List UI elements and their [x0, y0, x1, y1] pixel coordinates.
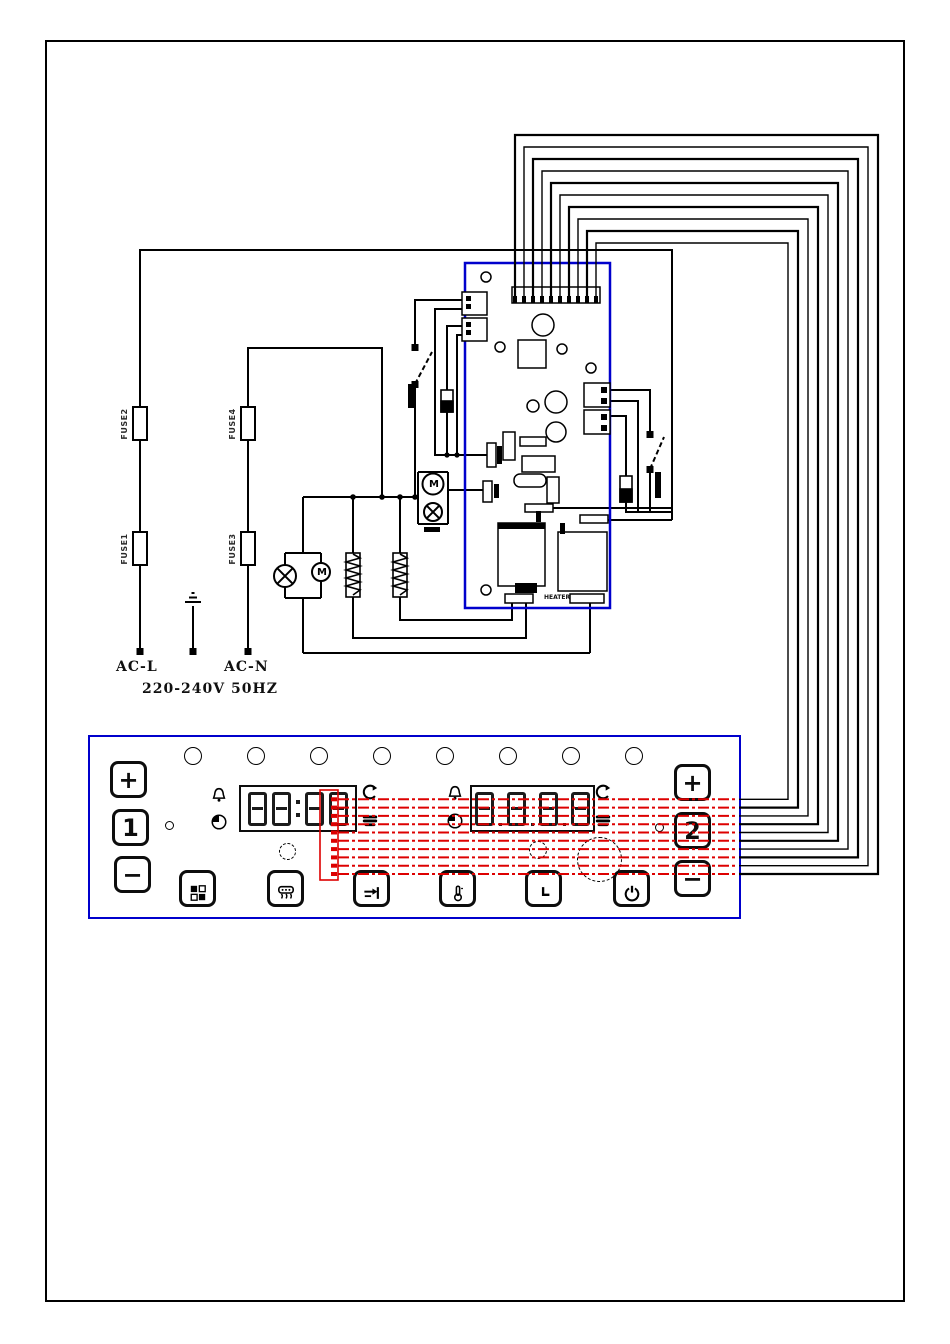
defrost-button[interactable]: [353, 870, 390, 907]
control-panel: + 1 −: [88, 735, 741, 919]
minus-button-right[interactable]: −: [674, 860, 711, 897]
buzzer-hole: [529, 841, 547, 859]
fuse4-label: FUSE4: [228, 407, 238, 441]
minus-button-left[interactable]: −: [114, 856, 151, 893]
bell-icon: [210, 786, 228, 804]
panel-hole: [373, 747, 391, 765]
steam-icon: [277, 880, 295, 898]
led-indicator-left: [165, 821, 174, 830]
panel-hole: [247, 747, 265, 765]
motor-symbol-label: M: [429, 479, 439, 490]
panel-hole: [499, 747, 517, 765]
fuse3-label: FUSE3: [228, 532, 238, 566]
wiring-diagram-page: + 1 −: [0, 0, 950, 1344]
clock-icon: [210, 813, 228, 831]
panel-hole: [184, 747, 202, 765]
heater-label: HEATER: [544, 594, 570, 601]
zone-one-button[interactable]: 1: [112, 809, 149, 846]
display-left: [239, 785, 357, 832]
display-right: [470, 785, 595, 832]
motor-symbol-label: M: [317, 567, 327, 578]
power-level-button[interactable]: [179, 870, 216, 907]
plus-button-left[interactable]: +: [110, 761, 147, 798]
plus-button-right[interactable]: +: [674, 764, 711, 801]
panel-hole: [436, 747, 454, 765]
convection-icon: [361, 783, 379, 801]
fuse2-label: FUSE2: [120, 407, 130, 441]
steam-grill-button[interactable]: [267, 870, 304, 907]
arrow-icon: [363, 880, 381, 898]
grid-icon: [189, 880, 207, 898]
buzzer-hole: [279, 843, 296, 860]
grill-icon: [361, 811, 379, 829]
panel-hole: [310, 747, 328, 765]
bell-icon: [446, 784, 464, 802]
led-indicator-right: [655, 823, 664, 832]
ac-neutral-label: AC-N: [224, 659, 269, 675]
page-border: [45, 40, 905, 1302]
panel-hole: [562, 747, 580, 765]
timer-button[interactable]: [525, 870, 562, 907]
ac-line-label: AC-L: [116, 659, 158, 675]
power-icon: [623, 880, 641, 898]
fuse1-label: FUSE1: [120, 532, 130, 566]
grill-icon: [594, 811, 612, 829]
temperature-button[interactable]: [439, 870, 476, 907]
thermometer-icon: [449, 880, 467, 898]
power-button[interactable]: [613, 870, 650, 907]
timer-icon: [535, 880, 553, 898]
clock-icon: [446, 812, 464, 830]
zone-two-button[interactable]: 2: [674, 812, 711, 849]
convection-icon: [594, 783, 612, 801]
panel-hole: [625, 747, 643, 765]
supply-rating-label: 220-240V 50HZ: [142, 681, 278, 697]
